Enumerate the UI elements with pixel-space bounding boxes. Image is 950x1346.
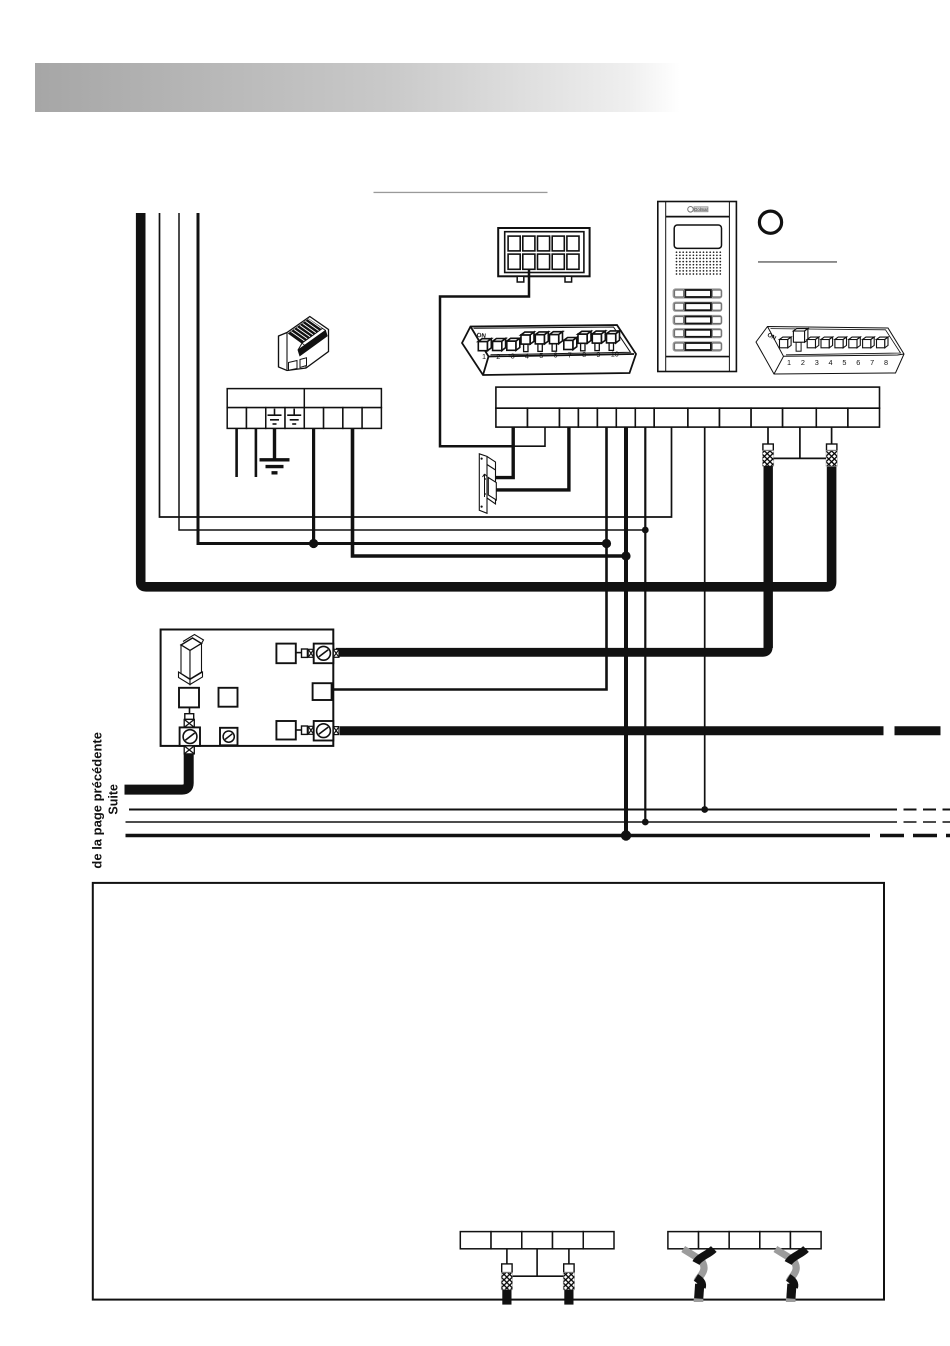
svg-text:Suite: Suite <box>107 784 121 815</box>
svg-text:5: 5 <box>842 358 846 367</box>
svg-text:3: 3 <box>511 352 515 361</box>
svg-text:4: 4 <box>525 351 529 360</box>
svg-text:8: 8 <box>582 350 586 359</box>
svg-text:9: 9 <box>596 350 600 359</box>
svg-text:6: 6 <box>856 358 860 367</box>
svg-text:Golmar: Golmar <box>694 207 708 212</box>
svg-text:10: 10 <box>611 350 619 359</box>
svg-text:2: 2 <box>801 358 805 367</box>
svg-text:1: 1 <box>482 352 486 361</box>
svg-text:2: 2 <box>496 352 500 361</box>
svg-text:ON: ON <box>476 332 486 340</box>
svg-text:1: 1 <box>787 358 791 367</box>
svg-text:6: 6 <box>554 351 558 360</box>
svg-text:de la page précédente: de la page précédente <box>90 732 105 869</box>
svg-text:3: 3 <box>815 358 819 367</box>
svg-text:7: 7 <box>870 358 874 367</box>
svg-text:7: 7 <box>568 350 572 359</box>
svg-text:4: 4 <box>829 358 833 367</box>
svg-text:5: 5 <box>539 351 543 360</box>
svg-text:8: 8 <box>884 358 888 367</box>
